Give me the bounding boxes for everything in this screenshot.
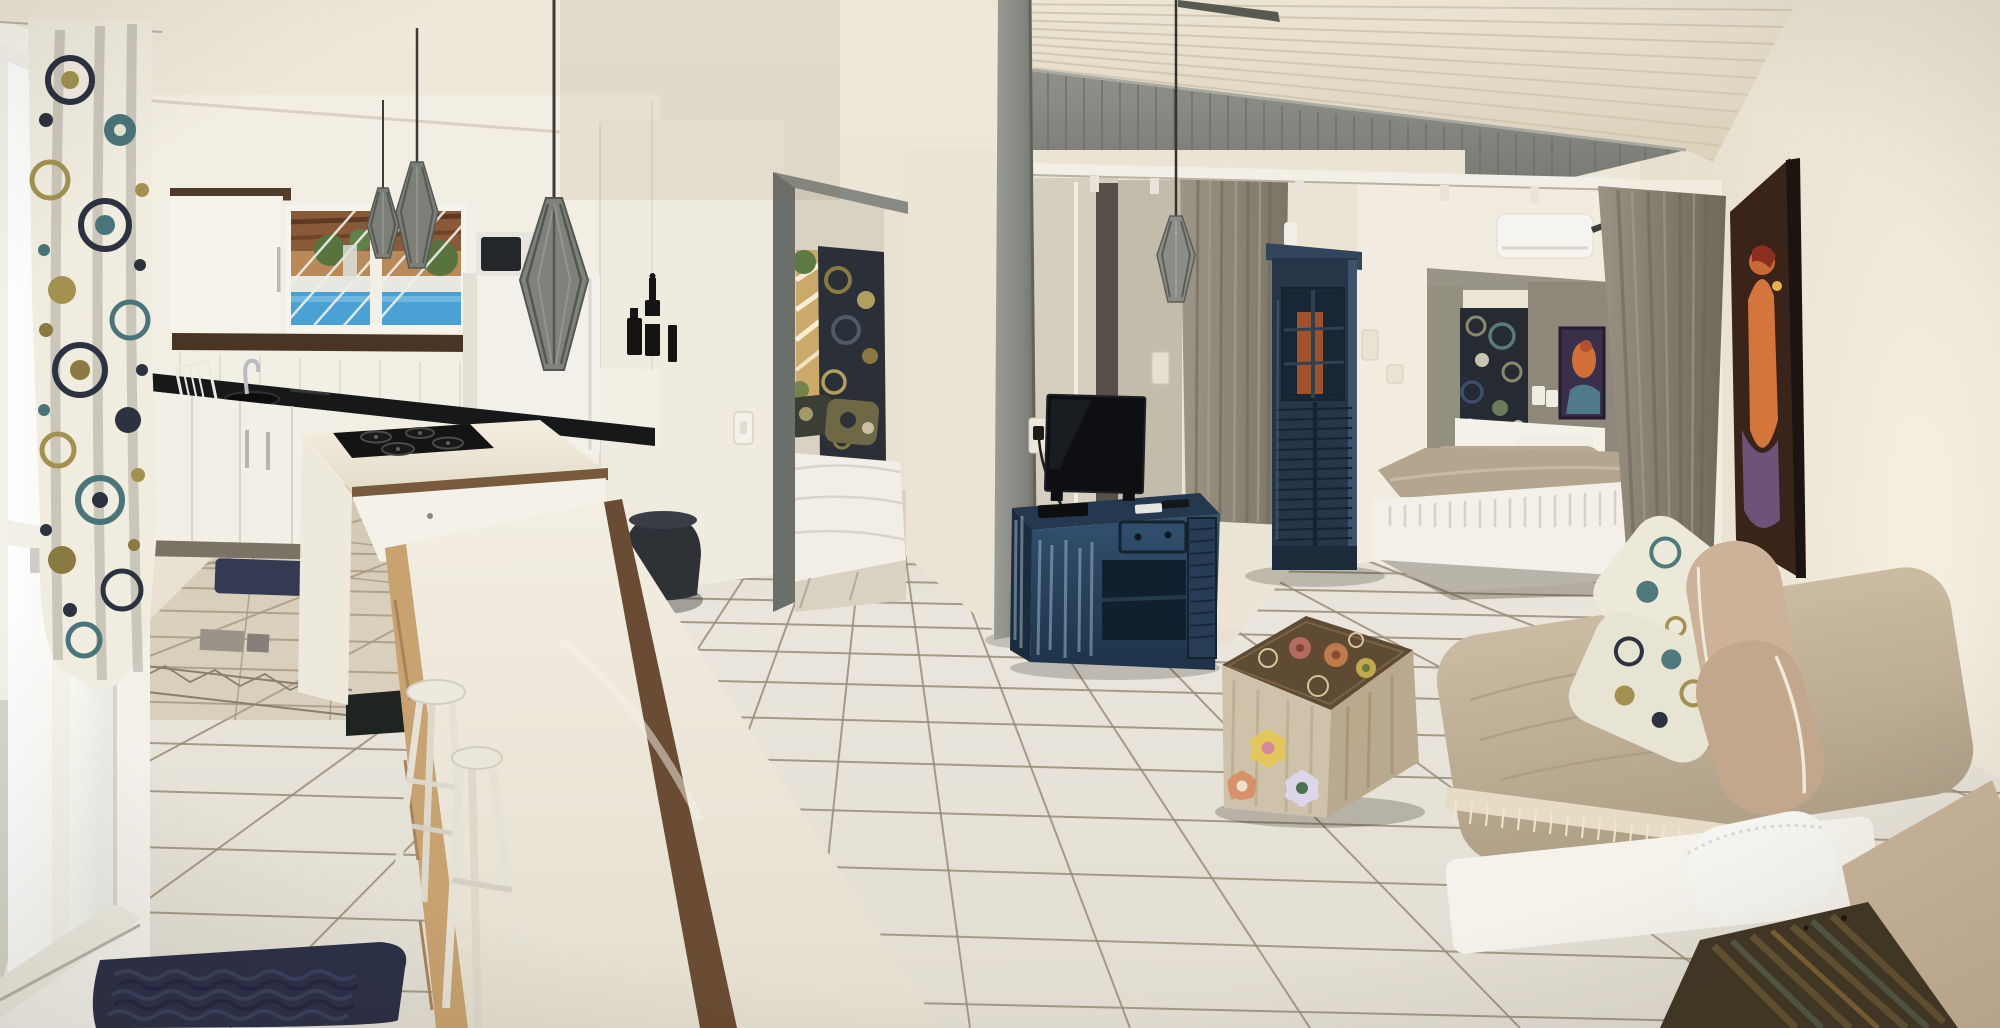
scene-canvas xyxy=(0,0,2000,1028)
vignette xyxy=(0,0,2000,1028)
apartment-photo xyxy=(0,0,2000,1028)
